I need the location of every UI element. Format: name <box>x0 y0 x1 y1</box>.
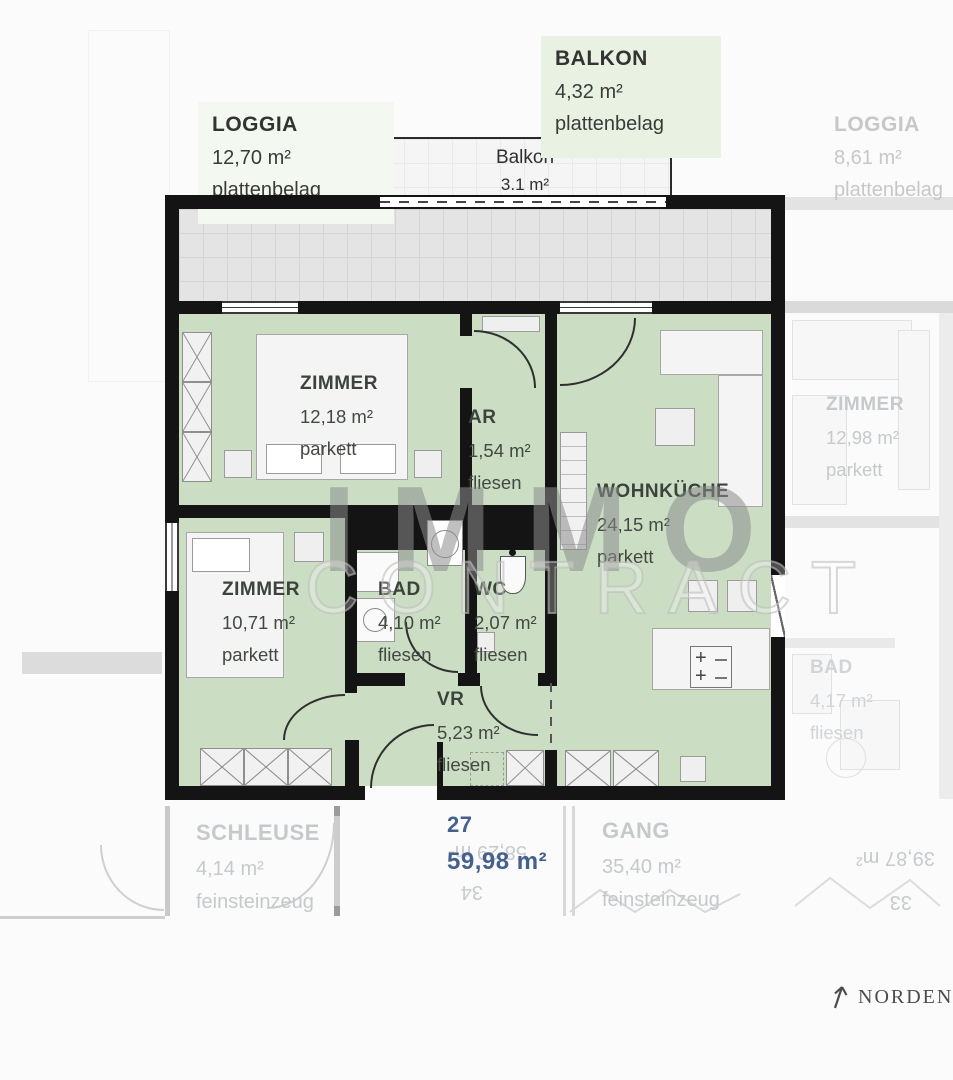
wardrobe <box>200 748 244 786</box>
wall-zimmer1-ar-stub <box>460 314 472 336</box>
zimmer2-label: ZIMMER 10,71 m² parkett <box>222 580 300 677</box>
wardrobe <box>288 748 332 786</box>
room-area: 12,98 m² <box>826 429 904 448</box>
watermark-contract: CONTRACT <box>305 551 876 625</box>
compass: NORDEN <box>828 984 953 1010</box>
sofa <box>660 330 763 375</box>
coffee-table <box>655 408 695 446</box>
burner-icon: + <box>695 666 707 686</box>
zimmer2-window <box>165 523 179 591</box>
outer-wall-left <box>165 195 179 800</box>
neighbor-furniture <box>792 320 912 380</box>
room-name: GANG <box>602 820 720 842</box>
room-finish: fliesen <box>437 756 500 775</box>
room-finish: feinsteinzeug <box>602 890 720 910</box>
room-area: 4,14 m² <box>196 859 320 879</box>
faint-outline <box>88 30 170 382</box>
gang-floor-mark <box>790 868 950 916</box>
burner-dash-icon <box>715 659 727 661</box>
neighbor-wall <box>785 638 895 648</box>
room-finish: parkett <box>222 646 300 665</box>
loggia-left-area: 12,70 m² <box>212 148 380 168</box>
burner-dash-icon <box>715 677 727 679</box>
loggia-right-label: LOGGIA 8,61 m² plattenbelag <box>820 102 953 224</box>
room-name: AR <box>468 408 531 427</box>
wall-zimmer2-door-post <box>345 740 359 786</box>
wardrobe <box>182 432 212 482</box>
bed-pillow <box>192 538 250 572</box>
balcony-area: 3.1 m² <box>380 175 670 195</box>
room-finish: parkett <box>300 440 378 459</box>
built-in-wardrobe <box>613 750 659 788</box>
room-finish: fliesen <box>810 724 873 743</box>
room-area: 4,17 m² <box>810 692 873 711</box>
unit-total-area: 59,98 m² <box>447 850 547 874</box>
wardrobe <box>506 750 544 786</box>
neighbor-wall <box>939 313 953 799</box>
stove: + + <box>690 646 732 688</box>
room-name: SCHLEUSE <box>196 822 320 844</box>
neighbor-zimmer-label: ZIMMER 12,98 m² parkett <box>826 395 904 492</box>
neighbor-bad-label: BAD 4,17 m² fliesen <box>810 658 873 755</box>
room-finish: fliesen <box>474 646 537 665</box>
corridor-wall <box>0 916 165 919</box>
room-area: 35,40 m² <box>602 857 720 877</box>
room-area: 1,54 m² <box>468 442 531 461</box>
loggia-right-title: LOGGIA <box>834 114 953 135</box>
corridor-door-arc <box>100 845 164 911</box>
room-name: BAD <box>810 658 873 677</box>
balkon-label: BALKON 4,32 m² plattenbelag <box>541 36 721 158</box>
balcony-threshold-dashed <box>380 197 666 207</box>
room-name: ZIMMER <box>300 374 378 393</box>
kitchen-sink <box>680 756 706 782</box>
unit33-area: 39,87 m² <box>835 846 935 869</box>
outer-wall-bottom-right <box>437 786 785 800</box>
room-area: 10,71 m² <box>222 614 300 633</box>
compass-label: NORDEN <box>858 986 953 1009</box>
vr-wohnkueche-opening-dashed <box>547 683 555 750</box>
zimmer1-label: ZIMMER 12,18 m² parkett <box>300 374 378 471</box>
north-arrow-icon <box>828 984 850 1010</box>
loggia-right-area: 8,61 m² <box>834 148 953 168</box>
zimmer1-window <box>222 301 298 314</box>
loggia-right-finish: plattenbelag <box>834 180 953 200</box>
balkon-title: BALKON <box>555 48 707 69</box>
corridor-wall <box>334 906 340 916</box>
floor-plan: LOGGIA 12,70 m² plattenbelag BALKON 4,32… <box>0 0 953 1080</box>
schleuse-label: SCHLEUSE 4,14 m² feinsteinzeug <box>196 822 320 925</box>
room-area: 5,23 m² <box>437 724 500 743</box>
room-finish: fliesen <box>378 646 441 665</box>
wall-hall-wohnkueche-lower <box>545 750 557 786</box>
corridor-wall <box>165 806 170 916</box>
wardrobe <box>182 332 212 382</box>
unit-number: 27 <box>447 814 547 836</box>
room-name: VR <box>437 690 500 709</box>
balcony-door-window <box>560 301 652 314</box>
outer-wall-bottom-left <box>165 786 365 800</box>
unit33-number: 33 <box>872 890 912 913</box>
wardrobe <box>244 748 288 786</box>
neighbor-wall <box>785 301 953 313</box>
room-name: ZIMMER <box>222 580 300 599</box>
room-finish: parkett <box>826 461 904 480</box>
built-in-wardrobe <box>565 750 611 788</box>
loggia-left-title: LOGGIA <box>212 114 380 135</box>
corridor-wall <box>334 816 340 906</box>
nightstand <box>224 450 252 478</box>
vr-label: VR 5,23 m² fliesen <box>437 690 500 787</box>
neighbor-wall <box>785 516 953 528</box>
room-name: ZIMMER <box>826 395 904 414</box>
balkon-area: 4,32 m² <box>555 82 707 102</box>
room-area: 12,18 m² <box>300 408 378 427</box>
gang-label: GANG 35,40 m² feinsteinzeug <box>602 820 720 923</box>
corridor-wall <box>334 806 340 816</box>
shelf <box>482 316 540 332</box>
unit-number-block: 27 59,98 m² <box>447 814 547 889</box>
wardrobe <box>182 382 212 432</box>
balkon-finish: plattenbelag <box>555 114 707 134</box>
left-gray-band <box>22 652 162 674</box>
room-finish: feinsteinzeug <box>196 892 320 912</box>
